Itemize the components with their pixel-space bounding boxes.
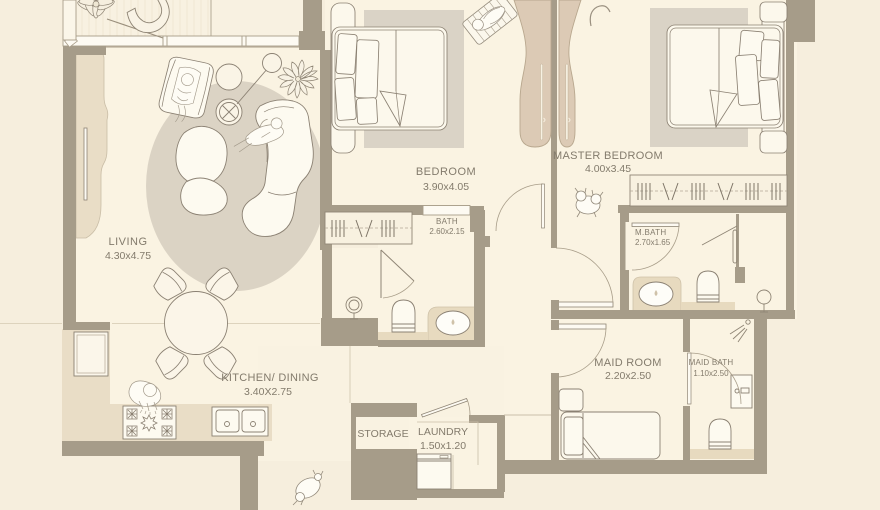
svg-text:STORAGE: STORAGE: [357, 428, 408, 440]
svg-text:2.20x2.50: 2.20x2.50: [605, 370, 651, 382]
svg-text:4.30x4.75: 4.30x4.75: [105, 250, 151, 262]
svg-text:BATH: BATH: [436, 217, 458, 226]
svg-text:3.90x4.05: 3.90x4.05: [423, 181, 469, 193]
svg-text:MAID ROOM: MAID ROOM: [594, 357, 661, 369]
svg-text:2.70x1.65: 2.70x1.65: [635, 238, 671, 247]
svg-text:LAUNDRY: LAUNDRY: [418, 426, 468, 438]
svg-text:M.BATH: M.BATH: [635, 228, 666, 237]
svg-text:MAID BATH: MAID BATH: [689, 358, 734, 367]
svg-text:2.60x2.15: 2.60x2.15: [429, 227, 465, 236]
svg-text:BEDROOM: BEDROOM: [416, 166, 476, 178]
svg-text:4.00x3.45: 4.00x3.45: [585, 163, 631, 175]
svg-text:1.10x2.50: 1.10x2.50: [693, 369, 729, 378]
svg-text:MASTER BEDROOM: MASTER BEDROOM: [553, 150, 663, 162]
svg-text:KITCHEN/ DINING: KITCHEN/ DINING: [221, 372, 318, 384]
svg-text:LIVING: LIVING: [108, 236, 147, 248]
svg-text:3.40X2.75: 3.40X2.75: [244, 386, 292, 398]
svg-text:1.50x1.20: 1.50x1.20: [420, 440, 466, 452]
